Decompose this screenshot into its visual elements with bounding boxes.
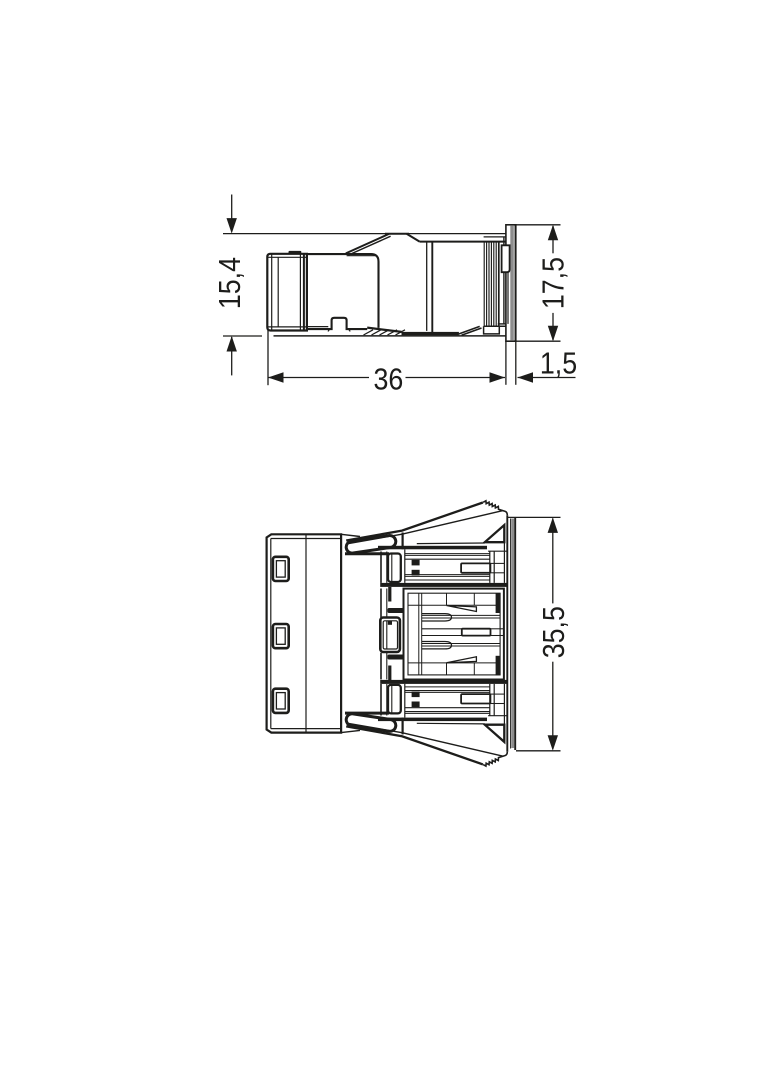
svg-text:1,5: 1,5 [540, 347, 577, 381]
svg-text:15,4: 15,4 [213, 257, 247, 309]
svg-text:35,5: 35,5 [537, 606, 571, 658]
svg-text:36: 36 [373, 363, 403, 397]
svg-text:17,5: 17,5 [537, 257, 571, 309]
